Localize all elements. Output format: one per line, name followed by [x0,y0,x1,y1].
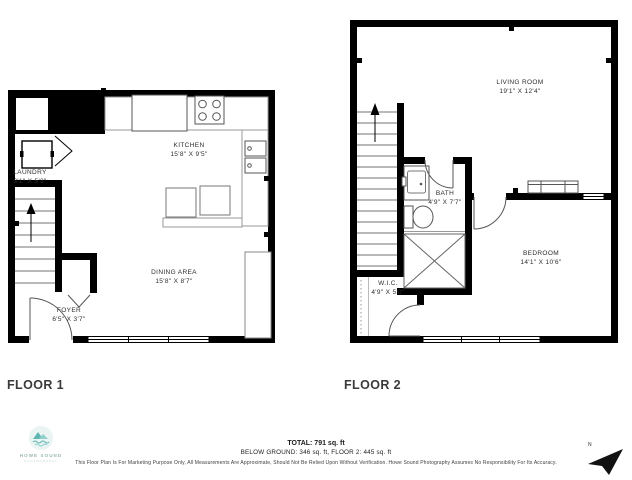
room-label-wic: W.I.C. 4'9" X 5'0" [371,280,404,297]
bath-wall-bottom [397,288,472,295]
bedroom-door-opening [474,192,506,201]
kitchen-dims: 15'8" X 9'5" [170,151,207,160]
dining-dims: 15'8" X 8'7" [151,278,197,287]
bath-wall-right [465,157,472,295]
floor1-plan [8,88,272,344]
room-label-dining: DINING AREA 15'8" X 8'7" [151,269,197,286]
wic-dims: 4'9" X 5'0" [371,289,404,298]
living-room-console [528,181,578,193]
bath-name: BATH [428,190,461,199]
kitchen-name: KITCHEN [170,142,207,151]
bath-door-opening [425,156,453,165]
room-label-foyer: FOYER 6'5" X 3'7" [52,307,85,324]
kitchen-chair-1 [166,188,196,217]
window-floor2-bottom [423,337,540,343]
total-area-text: TOTAL: 791 sq. ft [0,440,632,447]
refrigerator [132,95,187,131]
stove [195,96,224,124]
living-name: LIVING ROOM [496,79,543,88]
toilet-bowl [413,206,433,228]
dining-hutch [245,252,271,338]
dining-name: DINING AREA [151,269,197,278]
bedroom-name: BEDROOM [520,250,561,259]
floor2-title: FLOOR 2 [344,378,401,392]
bedroom-dims: 14'1" X 10'6" [520,259,561,268]
bath-dims: 4'9" X 7'7" [428,199,461,208]
room-label-laundry: LAUNDRY 3'1" X 5'3" [13,169,46,186]
floor-plan-drawing [0,0,632,480]
wic-name: W.I.C. [371,280,404,289]
understair-closet-wall-v [90,260,97,293]
toilet-tank [404,206,413,228]
floor1-title: FLOOR 1 [7,378,64,392]
disclaimer-text: This Floor Plan Is For Marketing Purpose… [0,460,632,466]
area-breakdown-text: BELOW GROUND: 346 sq. ft, FLOOR 2: 445 s… [0,449,632,456]
logo-name-text: HOWE SOUND [18,453,64,458]
window-floor1 [88,337,209,343]
understair-closet-wall-h [55,253,97,260]
linen-closet-x [404,234,465,288]
laundry-name: LAUNDRY [13,169,46,178]
foyer-name: FOYER [52,307,85,316]
stair-wall-floor1 [55,187,62,292]
room-label-living: LIVING ROOM 19'1" X 12'4" [496,79,543,96]
floor1-closet [16,98,48,130]
bath-drain [420,183,423,186]
kitchen-peninsula [163,218,242,227]
floor-plan-page: KITCHEN 15'8" X 9'5" LAUNDRY 3'1" X 5'3"… [0,0,632,480]
room-label-kitchen: KITCHEN 15'8" X 9'5" [170,142,207,159]
laundry-dims: 3'1" X 5'3" [13,178,46,187]
bath-faucet [402,177,406,186]
north-label: N [588,442,592,448]
logo-subtitle-text: PHOTOGRAPHY [18,459,64,463]
howe-sound-logo: HOWE SOUND PHOTOGRAPHY [18,426,64,463]
logo-badge-icon [29,426,53,450]
mountain-wave-icon [29,426,53,450]
room-label-bath: BATH 4'9" X 7'7" [428,190,461,207]
washer-hinge-right [51,151,55,157]
room-label-bedroom: BEDROOM 14'1" X 10'6" [520,250,561,267]
bedroom-window [583,194,604,200]
stair-wall-floor2 [397,103,404,277]
washer-hinge-left [20,151,24,157]
living-dims: 19'1" X 12'4" [496,88,543,97]
foyer-dims: 6'5" X 3'7" [52,316,85,325]
kitchen-chair-2 [200,186,230,215]
washer [22,141,52,168]
wic-door-opening [416,305,425,336]
entry-door-opening [29,335,73,344]
